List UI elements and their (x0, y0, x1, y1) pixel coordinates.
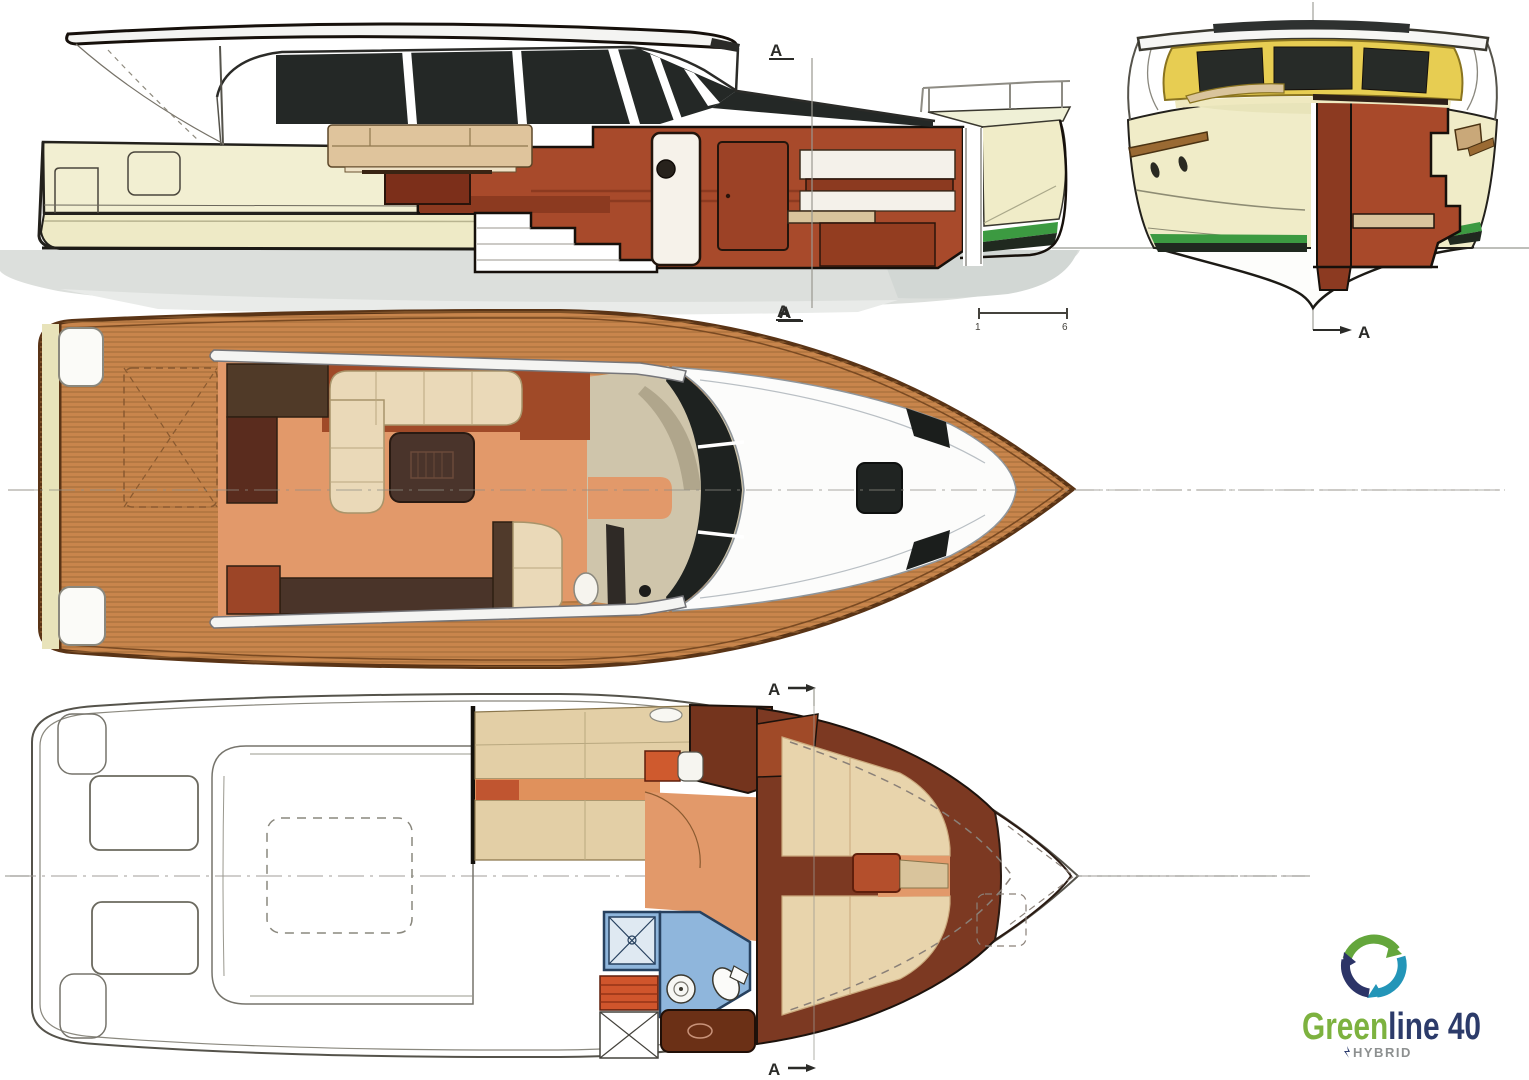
svg-text:A: A (768, 680, 780, 699)
svg-text:A: A (770, 41, 782, 60)
svg-text:A: A (777, 302, 789, 321)
svg-text:1: 1 (975, 322, 981, 333)
svg-text:A: A (768, 1060, 780, 1079)
svg-text:6: 6 (1062, 322, 1068, 333)
svg-text:HYBRID: HYBRID (1353, 1045, 1412, 1060)
svg-text:A: A (1358, 323, 1370, 342)
svg-text:Greenline 40: Greenline 40 (1302, 1006, 1481, 1048)
